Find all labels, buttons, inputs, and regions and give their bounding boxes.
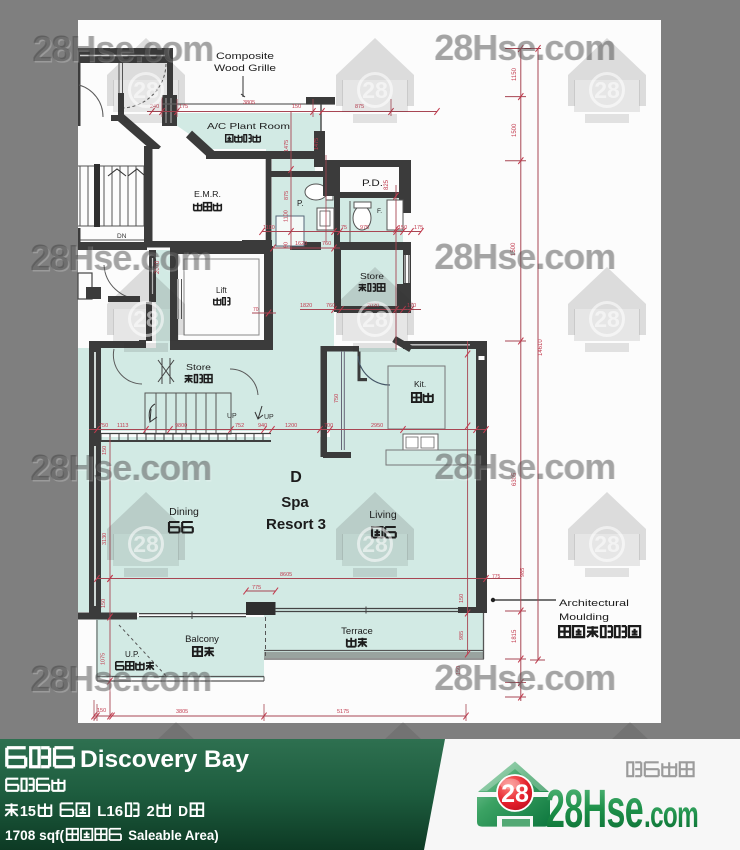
svg-text:D: D bbox=[290, 469, 302, 486]
svg-text:.com: .com bbox=[644, 794, 698, 835]
svg-text:175: 175 bbox=[414, 225, 423, 231]
svg-text:28Hse.com: 28Hse.com bbox=[31, 658, 212, 699]
svg-text:Architectural: Architectural bbox=[559, 598, 629, 609]
svg-text:90: 90 bbox=[284, 242, 290, 248]
svg-text:Terrace: Terrace bbox=[341, 626, 373, 637]
svg-text:28: 28 bbox=[594, 77, 620, 103]
svg-text:1500: 1500 bbox=[512, 123, 518, 137]
svg-text:15: 15 bbox=[20, 804, 36, 820]
svg-text:Composite: Composite bbox=[216, 51, 274, 62]
svg-text:752: 752 bbox=[235, 423, 244, 429]
svg-text:28Hse.com: 28Hse.com bbox=[435, 657, 616, 698]
svg-text:750: 750 bbox=[99, 423, 108, 429]
svg-text:150: 150 bbox=[97, 708, 106, 714]
svg-text:28Hse: 28Hse bbox=[546, 779, 643, 839]
svg-text:Wood Grille: Wood Grille bbox=[214, 63, 276, 74]
svg-text:1815: 1815 bbox=[512, 629, 518, 643]
svg-text:28: 28 bbox=[133, 77, 159, 103]
svg-text:760: 760 bbox=[322, 241, 331, 247]
svg-text:700: 700 bbox=[324, 423, 333, 429]
svg-text:28: 28 bbox=[133, 531, 159, 557]
svg-text:775: 775 bbox=[252, 585, 261, 591]
svg-text:F.: F. bbox=[377, 208, 382, 215]
svg-text:E.M.R.: E.M.R. bbox=[194, 189, 221, 199]
svg-text:28Hse.com: 28Hse.com bbox=[435, 446, 616, 487]
svg-text:28: 28 bbox=[594, 306, 620, 332]
svg-text:150: 150 bbox=[459, 594, 465, 603]
svg-text:Spa: Spa bbox=[281, 494, 309, 511]
svg-text:Resort 3: Resort 3 bbox=[266, 516, 326, 533]
svg-text:28Hse.com: 28Hse.com bbox=[435, 236, 616, 277]
svg-text:750: 750 bbox=[334, 394, 340, 403]
svg-text:1620: 1620 bbox=[295, 241, 307, 247]
svg-text:28Hse.com: 28Hse.com bbox=[31, 447, 212, 488]
svg-text:Kit.: Kit. bbox=[414, 379, 426, 389]
svg-text:985: 985 bbox=[520, 568, 526, 577]
svg-text:75: 75 bbox=[341, 225, 347, 231]
svg-text:Saleable Area): Saleable Area) bbox=[128, 827, 218, 843]
svg-text:985: 985 bbox=[459, 631, 465, 640]
svg-text:9800: 9800 bbox=[175, 423, 187, 429]
svg-text:8605: 8605 bbox=[280, 572, 292, 578]
svg-text:1708 sqf(: 1708 sqf( bbox=[5, 827, 64, 843]
svg-text:5175: 5175 bbox=[337, 709, 349, 715]
svg-text:28: 28 bbox=[362, 306, 388, 332]
svg-text:1200: 1200 bbox=[285, 423, 297, 429]
svg-text:1475: 1475 bbox=[314, 138, 320, 150]
svg-text:28Hse.com: 28Hse.com bbox=[31, 237, 212, 278]
svg-text:150: 150 bbox=[398, 225, 407, 231]
svg-text:760: 760 bbox=[326, 303, 335, 309]
svg-text:28: 28 bbox=[594, 531, 620, 557]
svg-text:UP: UP bbox=[227, 413, 237, 420]
svg-text:2: 2 bbox=[147, 804, 155, 820]
svg-text:Store: Store bbox=[186, 362, 211, 372]
svg-text:UP: UP bbox=[264, 414, 274, 421]
svg-text:875: 875 bbox=[284, 191, 290, 200]
svg-text:Balcony: Balcony bbox=[185, 634, 219, 645]
svg-text:Dining: Dining bbox=[169, 506, 199, 518]
svg-text:70: 70 bbox=[253, 307, 259, 313]
svg-text:28: 28 bbox=[362, 531, 388, 557]
svg-text:940: 940 bbox=[258, 423, 267, 429]
svg-text:P.D.: P.D. bbox=[362, 178, 383, 189]
svg-text:975: 975 bbox=[360, 225, 369, 231]
svg-text:P.: P. bbox=[297, 199, 304, 208]
svg-text:1820: 1820 bbox=[300, 303, 312, 309]
svg-text:775: 775 bbox=[492, 574, 501, 580]
svg-text:Discovery Bay: Discovery Bay bbox=[80, 746, 249, 773]
svg-text:3805: 3805 bbox=[243, 100, 255, 106]
svg-text:28: 28 bbox=[362, 77, 388, 103]
svg-text:3805: 3805 bbox=[176, 709, 188, 715]
svg-text:1100: 1100 bbox=[284, 210, 290, 222]
svg-text:2950: 2950 bbox=[371, 423, 383, 429]
svg-text:A/C Plant Room: A/C Plant Room bbox=[207, 121, 290, 131]
svg-text:Moulding: Moulding bbox=[559, 612, 609, 623]
svg-text:28: 28 bbox=[133, 306, 159, 332]
svg-text:28: 28 bbox=[501, 780, 529, 808]
svg-text:825: 825 bbox=[384, 179, 390, 190]
svg-text:150: 150 bbox=[292, 104, 301, 110]
svg-text:D: D bbox=[178, 804, 188, 820]
svg-text:150: 150 bbox=[101, 599, 107, 608]
svg-text:14610: 14610 bbox=[538, 339, 544, 356]
svg-text:Lift: Lift bbox=[216, 286, 227, 295]
svg-text:1475: 1475 bbox=[284, 140, 290, 152]
svg-text:L16: L16 bbox=[97, 804, 123, 820]
svg-text:1113: 1113 bbox=[117, 423, 128, 429]
svg-text:1100: 1100 bbox=[263, 225, 275, 231]
